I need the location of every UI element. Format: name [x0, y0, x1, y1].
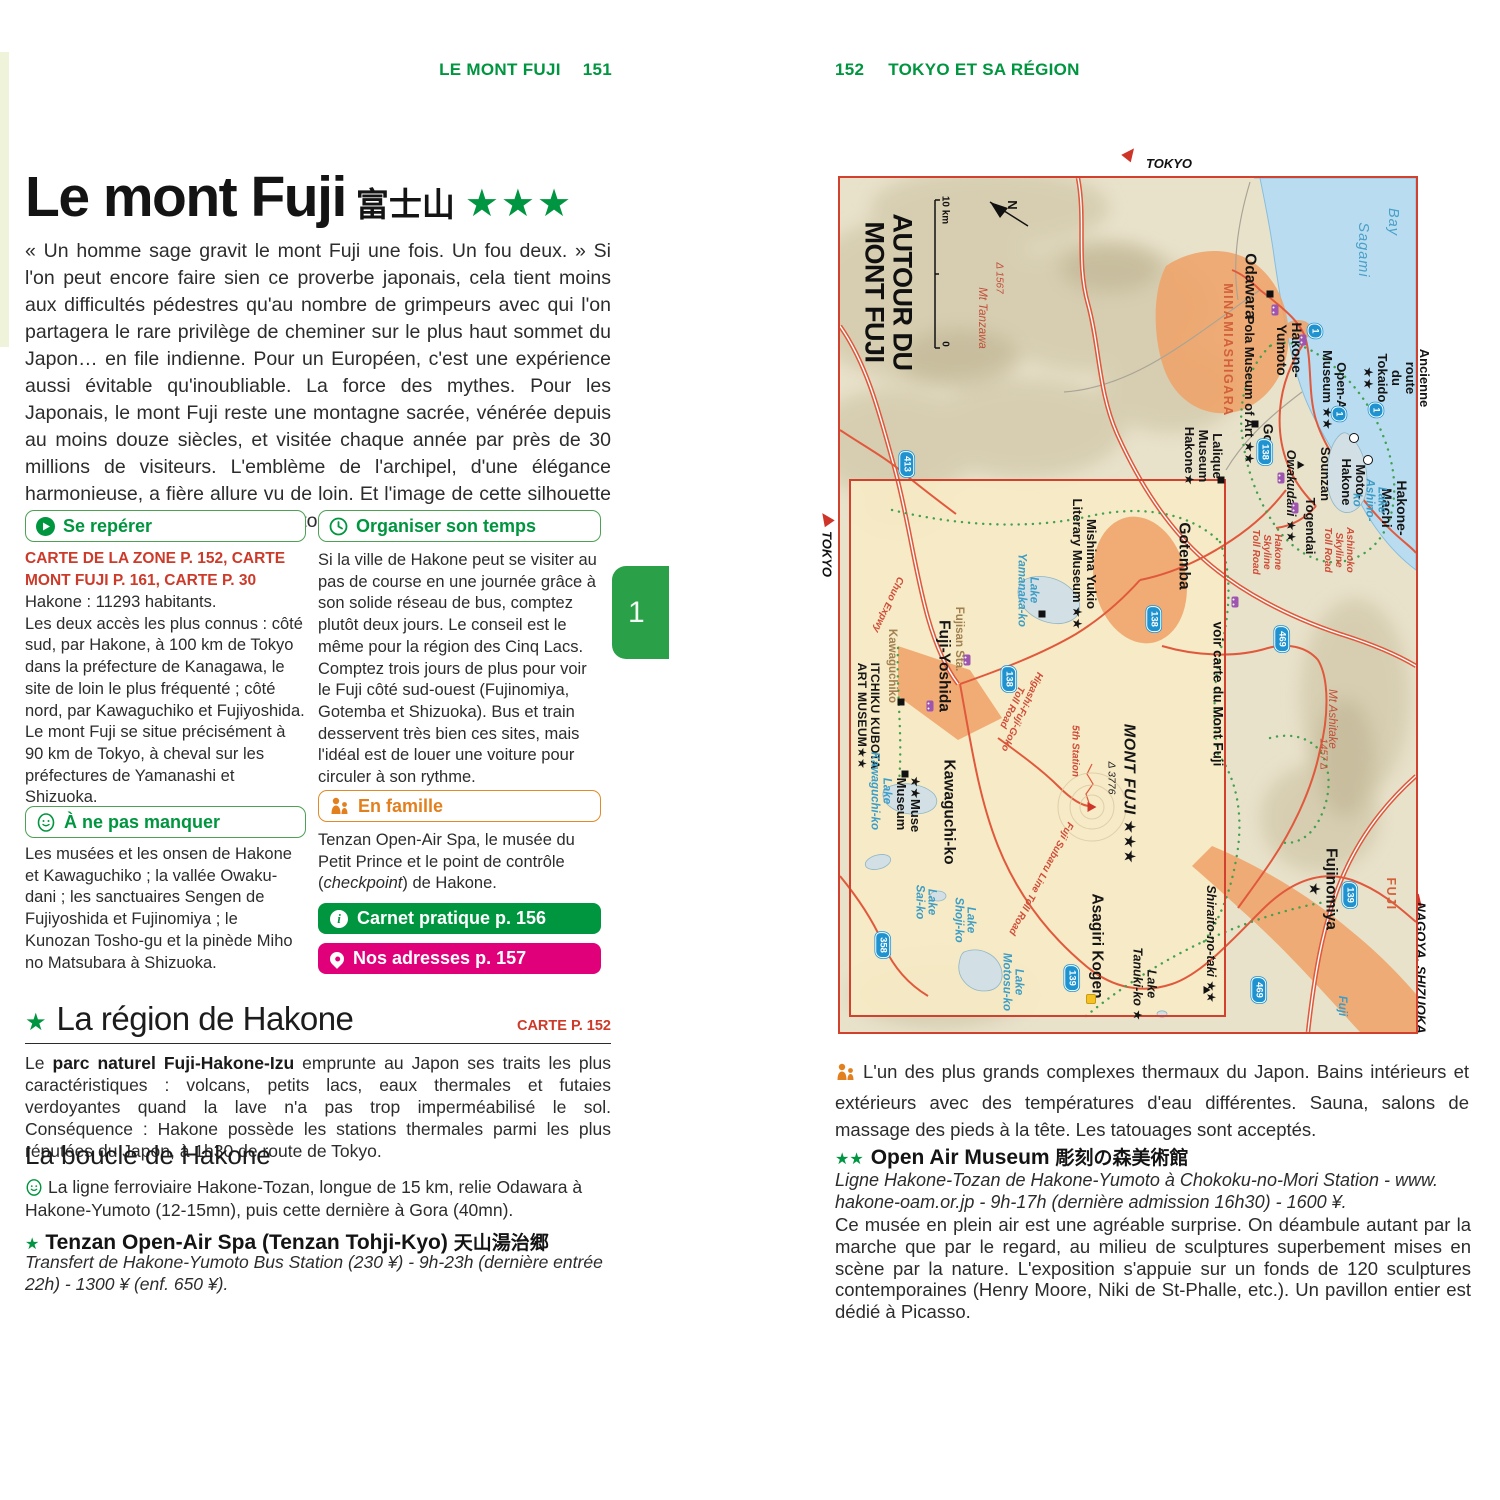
map-marker-sq [902, 771, 909, 778]
dest-tokyo-top: TOKYO [1146, 156, 1192, 171]
info-icon: i [330, 910, 348, 928]
map-label: Owakudani ★★ [1283, 450, 1297, 543]
open-air-museum-info: Ligne Hakone-Tozan de Hakone-Yumoto à Ch… [835, 1170, 1469, 1213]
route-badge: 138 [1002, 666, 1017, 692]
map-marker-circ [1363, 455, 1373, 465]
tenzan-japanese: 天山湯治郷 [454, 1233, 549, 1254]
carnet-pratique-button[interactable]: i Carnet pratique p. 156 [318, 903, 601, 934]
map-label: Asagiri Kogen [1088, 893, 1105, 998]
running-header-right: 152TOKYO ET SA RÉGION [835, 60, 1080, 80]
map-label: Lake Tanuki-ko ★ [1131, 947, 1158, 1020]
map-marker-tri [1298, 461, 1305, 469]
map-label: Sounzan [1318, 447, 1332, 501]
map-marker-sq [1252, 421, 1259, 428]
map-label: Hakone Skyline Toll Road [1250, 529, 1282, 574]
tenzan-title: Tenzan Open-Air Spa (Tenzan Tohji-Kyo) [45, 1231, 448, 1254]
tenzan-heading: ★Tenzan Open-Air Spa (Tenzan Tohji-Kyo) … [25, 1228, 611, 1255]
map-label: 0 [939, 341, 950, 347]
route-1-badge: 1 [1369, 403, 1384, 418]
map-label: Sagami [1354, 222, 1370, 277]
map-label: Ancienne route du Tokaido ★★ [1361, 349, 1431, 408]
map-marker-train [1278, 473, 1285, 484]
page-title-japanese: 富士山 [356, 186, 455, 223]
open-air-museum-title: Open Air Museum [871, 1146, 1050, 1169]
map-label: FUJI [1383, 877, 1397, 910]
onigiri-face-icon [25, 1178, 43, 1196]
a-ne-pas-manquer-box: À ne pas manquer [25, 806, 306, 838]
map-label: Fujinomiya ★ [1305, 842, 1338, 936]
page-title-text: Le mont Fuji [25, 165, 346, 229]
map-pin-icon [327, 949, 347, 969]
map-marker-trired [1088, 802, 1097, 812]
map-label: Hakone- Yumoto [1274, 322, 1304, 377]
map-label: Fuji [1336, 996, 1348, 1016]
route-badge: 138 [1147, 606, 1162, 632]
en-famille-title: En famille [358, 796, 443, 817]
map-label: Lake Kawaguchi-ko [868, 752, 893, 830]
clock-icon [329, 517, 348, 536]
map-marker-circ [1349, 433, 1359, 443]
a-ne-pas-manquer-body: Les musées et les onsen de Hakone et Kaw… [25, 844, 306, 974]
region-bold-text: parc naturel Fuji-Hakone-Izu [53, 1053, 295, 1073]
region-section-title: La région de Hakone [57, 1000, 354, 1038]
map-label: Fuji-Yoshida [935, 620, 952, 712]
open-air-museum-japanese: 彫刻の森美術館 [1055, 1148, 1188, 1169]
map-label: N [1005, 200, 1019, 209]
map-label: Δ 1567 [993, 262, 1004, 293]
map-label: Mt Tanzawa [976, 287, 988, 349]
running-header-left: LE MONT FUJI151 [0, 60, 612, 80]
map-label: AUTOUR DU MONT FUJI [860, 214, 915, 371]
map-label: Mt Ashitake [1326, 689, 1338, 749]
rating-stars: ★★★ [465, 183, 573, 225]
chapter-tab-number: 1 [628, 596, 645, 630]
mont-fuji-map: AUTOUR DU MONT FUJI10 km0NMt TanzawaΔ 15… [838, 176, 1418, 1034]
se-reperer-box: Se repérer [25, 510, 306, 542]
map-marker-train [1272, 305, 1279, 316]
boucle-text: La ligne ferroviaire Hakone-Tozan, longu… [25, 1177, 582, 1220]
en-famille-italic: checkpoint [324, 874, 403, 892]
map-marker-sq [1218, 477, 1225, 484]
route-badge: 413 [900, 451, 915, 477]
route-badge: 358 [876, 932, 891, 958]
chapter-tab: 1 [612, 566, 669, 659]
map-label: Pola Museum of Art ★★ [1242, 316, 1256, 465]
map-label: Kawaguchiko [886, 629, 898, 703]
page-number-left: 151 [583, 60, 612, 79]
intro-paragraph: « Un homme sage gravit le mont Fuji une … [25, 238, 611, 535]
route-1-badge: 1 [1308, 324, 1323, 339]
boucle-body: La ligne ferroviaire Hakone-Tozan, longu… [25, 1176, 611, 1221]
page-edge-strip [0, 52, 9, 347]
organiser-box: Organiser son temps [318, 510, 601, 542]
tenzan-practical-info: Transfert de Hakone-Yumoto Bus Station (… [25, 1252, 611, 1295]
map-label: Gotemba [1175, 522, 1192, 589]
dest-tokyo-left: TOKYO [820, 531, 835, 577]
map-label: MINAMIASHIGARA [1220, 283, 1234, 417]
tokyo-arrow-icon [817, 510, 834, 528]
nos-adresses-label: Nos adresses p. 157 [353, 948, 526, 969]
map-label: Lake Shoji-ko [952, 897, 977, 942]
map-marker-train [927, 701, 934, 712]
route-badge: 139 [1343, 882, 1358, 908]
onigiri-face-icon [36, 812, 56, 832]
map-label: Mishima Yukio Literary Museum ★★ [1070, 499, 1098, 630]
map-label: 10 km [939, 196, 950, 224]
header-title-left: LE MONT FUJI [439, 60, 561, 79]
map-label: ★★Muse Museum [894, 776, 922, 833]
se-reperer-title: Se repérer [63, 516, 152, 537]
map-label: Ashinoko Skyline Toll Road [1322, 527, 1354, 573]
en-famille-body: Tenzan Open-Air Spa, le musée du Petit P… [318, 830, 601, 895]
map-marker-sq [898, 699, 905, 706]
thermal-complex-text: L'un des plus grands complexes thermaux … [835, 1061, 1469, 1140]
nos-adresses-button[interactable]: Nos adresses p. 157 [318, 943, 601, 974]
boucle-subheading: La boucle de Hakone [25, 1140, 271, 1171]
play-icon [36, 517, 55, 536]
map-label: Lake Yamanaka-ko [1015, 553, 1040, 627]
carnet-pratique-label: Carnet pratique p. 156 [357, 908, 546, 929]
map-label: Lake Sai-ko [913, 885, 938, 920]
map-marker-train [1232, 597, 1239, 608]
poi-star-icon: ★ [25, 1236, 39, 1253]
map-label: Chuo Expwy [869, 575, 904, 634]
section-rule [25, 1043, 611, 1044]
page-number-right: 152 [835, 60, 864, 79]
map-marker-sq [1267, 291, 1274, 298]
map-label: Moto- Hakone [1339, 459, 1367, 506]
map-label: ITCHIKU KUBOTA ART MUSEUM★★ [855, 663, 881, 770]
organiser-body: Si la ville de Hakone peut se visiter au… [318, 550, 601, 789]
a-ne-pas-manquer-title: À ne pas manquer [64, 812, 220, 833]
map-marker-train [964, 655, 971, 666]
map-label: 5th Station [1069, 725, 1080, 777]
map-label: Togendai [1303, 498, 1317, 555]
region-section-header: ★ La région de Hakone CARTE P. 152 [25, 1000, 611, 1038]
se-reperer-body: Hakone : 11293 habitants. Les deux accès… [25, 592, 306, 809]
map-label: Bay [1384, 208, 1400, 236]
family-icon [835, 1061, 856, 1089]
map-label: Hakone-Machi [1379, 480, 1409, 535]
route-badge: 139 [1065, 965, 1080, 991]
route-badge: 469 [1275, 626, 1290, 652]
route-badge: 138 [1258, 439, 1273, 465]
map-label: MONT FUJI ★★★ [1120, 724, 1137, 864]
thermal-complex-paragraph: L'un des plus grands complexes thermaux … [835, 1058, 1469, 1144]
map-marker-sq [1039, 611, 1046, 618]
region-text: Le [25, 1053, 53, 1073]
map-label: Lake Ashino-ko [1350, 477, 1387, 524]
map-label: Fuji Subaru Line Toll Road [1006, 820, 1075, 937]
map-label: voir carte du Mont Fuji [1210, 622, 1225, 767]
organiser-title: Organiser son temps [356, 516, 536, 537]
open-air-museum-heading: ★★Open Air Museum 彫刻の森美術館 [835, 1143, 1469, 1170]
map-label: Kawaguchi-ko [940, 759, 957, 864]
section-star-icon: ★ [25, 1008, 47, 1037]
poi-stars-icon: ★★ [835, 1151, 864, 1168]
region-carte-ref: CARTE P. 152 [517, 1018, 611, 1034]
map-marker-torii [1086, 994, 1096, 1004]
route-1-badge: 1 [1332, 407, 1347, 422]
page-title: Le mont Fuji富士山★★★ [25, 164, 573, 230]
map-label: Lake Motosu-ko [1000, 953, 1025, 1011]
family-icon [329, 797, 350, 815]
open-air-museum-body: Ce musée en plein air est une agréable s… [835, 1214, 1471, 1323]
map-label: Δ 3776 [1105, 762, 1116, 795]
map-overlay: AUTOUR DU MONT FUJI10 km0NMt TanzawaΔ 15… [840, 178, 1416, 1032]
route-badge: 469 [1252, 977, 1267, 1003]
en-famille-box: En famille [318, 790, 601, 822]
en-famille-text-end: ) de Hakone. [402, 874, 496, 892]
map-marker-tri [1204, 986, 1211, 994]
map-label: Odawara [1241, 253, 1258, 318]
map-label: 1457 Δ [1317, 738, 1328, 769]
map-references: CARTE DE LA ZONE P. 152, CARTE MONT FUJI… [25, 548, 306, 591]
header-title-right: TOKYO ET SA RÉGION [888, 60, 1079, 79]
map-marker-train [1300, 335, 1307, 346]
tokyo-arrow-icon [1121, 145, 1138, 163]
map-marker-train [1292, 503, 1299, 514]
